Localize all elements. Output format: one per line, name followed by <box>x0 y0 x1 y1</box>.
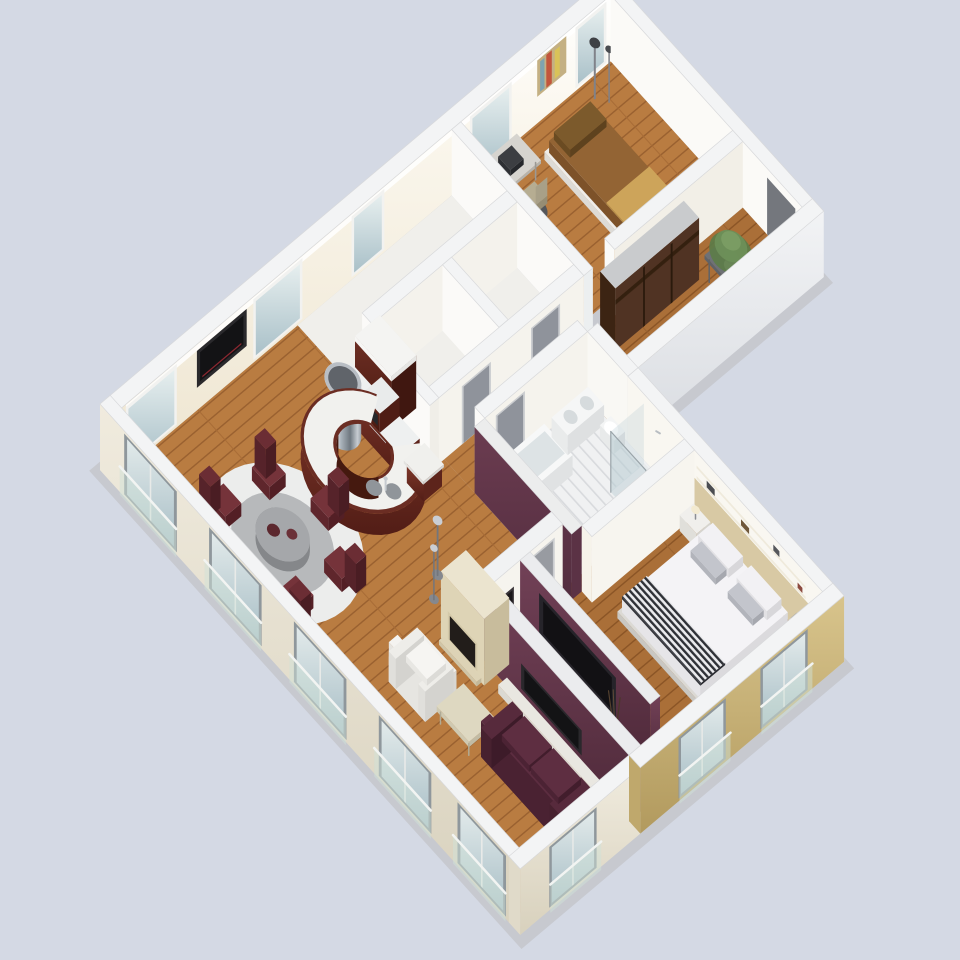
wall-bath-plum-right <box>572 525 582 600</box>
floorplan-stage: 3D apartment floor plan <box>0 0 960 960</box>
facade-se-tan-left <box>629 755 640 834</box>
wardrobe-divider <box>643 266 645 327</box>
painting-stripe <box>540 58 544 92</box>
painting-stripe <box>555 46 560 79</box>
wall-bath-bedroom-left <box>582 525 592 602</box>
painting-stripe <box>546 50 552 88</box>
wardrobe-divider <box>671 243 673 304</box>
floorplan-3d-render <box>0 0 960 960</box>
facade-se-cream-left <box>509 856 520 935</box>
